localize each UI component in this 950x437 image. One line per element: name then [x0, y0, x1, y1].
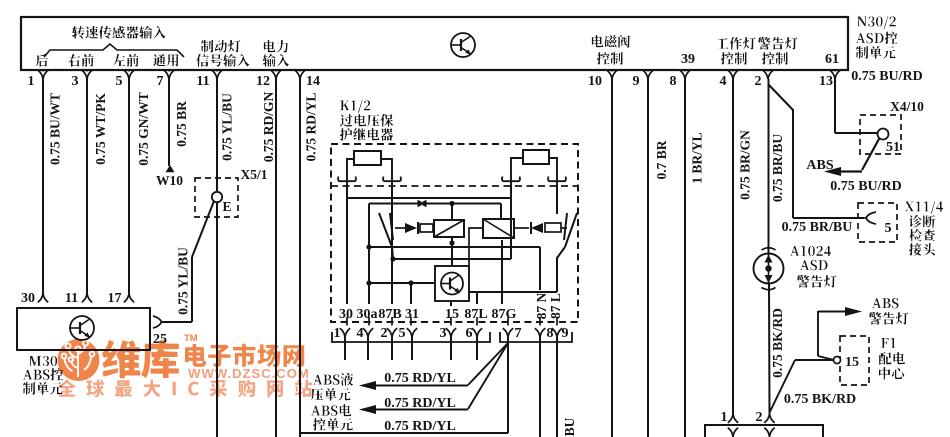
svg-text:25: 25 [153, 332, 167, 347]
svg-text:BU: BU [562, 417, 577, 436]
svg-text:ABS: ABS [806, 158, 833, 173]
svg-text:11: 11 [196, 74, 209, 89]
svg-text:87 L: 87 L [548, 293, 563, 319]
svg-text:0.75 WT/PK: 0.75 WT/PK [93, 93, 108, 165]
svg-text:15: 15 [845, 355, 859, 370]
svg-text:0.75 BK/RD: 0.75 BK/RD [784, 392, 856, 407]
svg-text:30: 30 [339, 307, 353, 322]
svg-text:10: 10 [588, 74, 602, 89]
svg-text:0.75 BR/BU: 0.75 BR/BU [782, 220, 853, 235]
svg-text:0.75 YL/BU: 0.75 YL/BU [220, 93, 235, 161]
svg-text:87 N: 87 N [534, 292, 549, 319]
svg-text:14: 14 [306, 74, 320, 89]
svg-text:0.75 BU/WT: 0.75 BU/WT [48, 93, 63, 165]
svg-text:0.75 BU/RD: 0.75 BU/RD [830, 179, 902, 194]
svg-text:87G: 87G [492, 307, 517, 322]
svg-text:31: 31 [405, 307, 419, 322]
svg-text:7: 7 [515, 326, 522, 341]
svg-text:X5/1: X5/1 [241, 167, 268, 182]
svg-text:0.75 RD/YL: 0.75 RD/YL [304, 92, 319, 161]
svg-text:87L: 87L [464, 307, 487, 322]
svg-text:TM: TM [184, 333, 198, 344]
svg-text:WWW.DZSC.COM: WWW.DZSC.COM [188, 366, 310, 381]
svg-text:5: 5 [885, 221, 892, 236]
svg-text:87B: 87B [378, 307, 401, 322]
svg-text:0.75 BU/RD: 0.75 BU/RD [851, 69, 923, 84]
svg-text:0.75 RD/YL: 0.75 RD/YL [384, 419, 456, 434]
svg-text:0.7 BR: 0.7 BR [654, 140, 669, 179]
svg-text:11: 11 [65, 291, 78, 306]
svg-text:3: 3 [440, 326, 447, 341]
svg-text:1: 1 [28, 74, 35, 89]
svg-text:39: 39 [681, 52, 695, 67]
svg-text:12: 12 [256, 74, 270, 89]
svg-text:0.75 BR/GN: 0.75 BR/GN [738, 130, 753, 200]
svg-text:30: 30 [21, 291, 35, 306]
svg-text:0.75 RD/YL: 0.75 RD/YL [384, 396, 456, 411]
svg-text:9: 9 [562, 326, 569, 341]
svg-text:0.75 BR: 0.75 BR [174, 101, 189, 147]
svg-text:17: 17 [108, 291, 122, 306]
svg-text:13: 13 [819, 74, 833, 89]
svg-text:5: 5 [399, 326, 406, 341]
svg-text:2: 2 [381, 326, 388, 341]
svg-text:8: 8 [670, 74, 677, 89]
svg-text:0.75 RD/GN: 0.75 RD/GN [261, 92, 276, 163]
svg-text:61: 61 [825, 52, 839, 67]
svg-text:0.75 BK/RD: 0.75 BK/RD [770, 308, 785, 378]
svg-text:4: 4 [357, 326, 364, 341]
svg-text:7: 7 [157, 74, 164, 89]
svg-text:0.75 YL/BU: 0.75 YL/BU [176, 247, 191, 315]
svg-text:30a: 30a [357, 307, 378, 322]
svg-text:0.75 GN/WT: 0.75 GN/WT [136, 92, 151, 166]
svg-text:1: 1 [334, 326, 341, 341]
svg-text:6: 6 [466, 326, 473, 341]
svg-text:2: 2 [756, 410, 763, 425]
svg-text:W10: W10 [156, 173, 183, 188]
svg-text:1 BR/YL: 1 BR/YL [690, 132, 705, 183]
svg-text:4: 4 [720, 74, 727, 89]
svg-text:51: 51 [886, 140, 900, 155]
svg-text:0.75 RD/YL: 0.75 RD/YL [384, 371, 456, 386]
svg-text:0.75 BR/BU: 0.75 BR/BU [770, 134, 785, 203]
svg-text:2: 2 [755, 74, 762, 89]
svg-text:E: E [222, 199, 231, 214]
svg-text:9: 9 [633, 74, 640, 89]
svg-text:1: 1 [721, 410, 728, 425]
svg-text:15: 15 [445, 307, 459, 322]
svg-text:3: 3 [72, 74, 79, 89]
svg-text:5: 5 [116, 74, 123, 89]
svg-text:X4/10: X4/10 [890, 99, 924, 114]
